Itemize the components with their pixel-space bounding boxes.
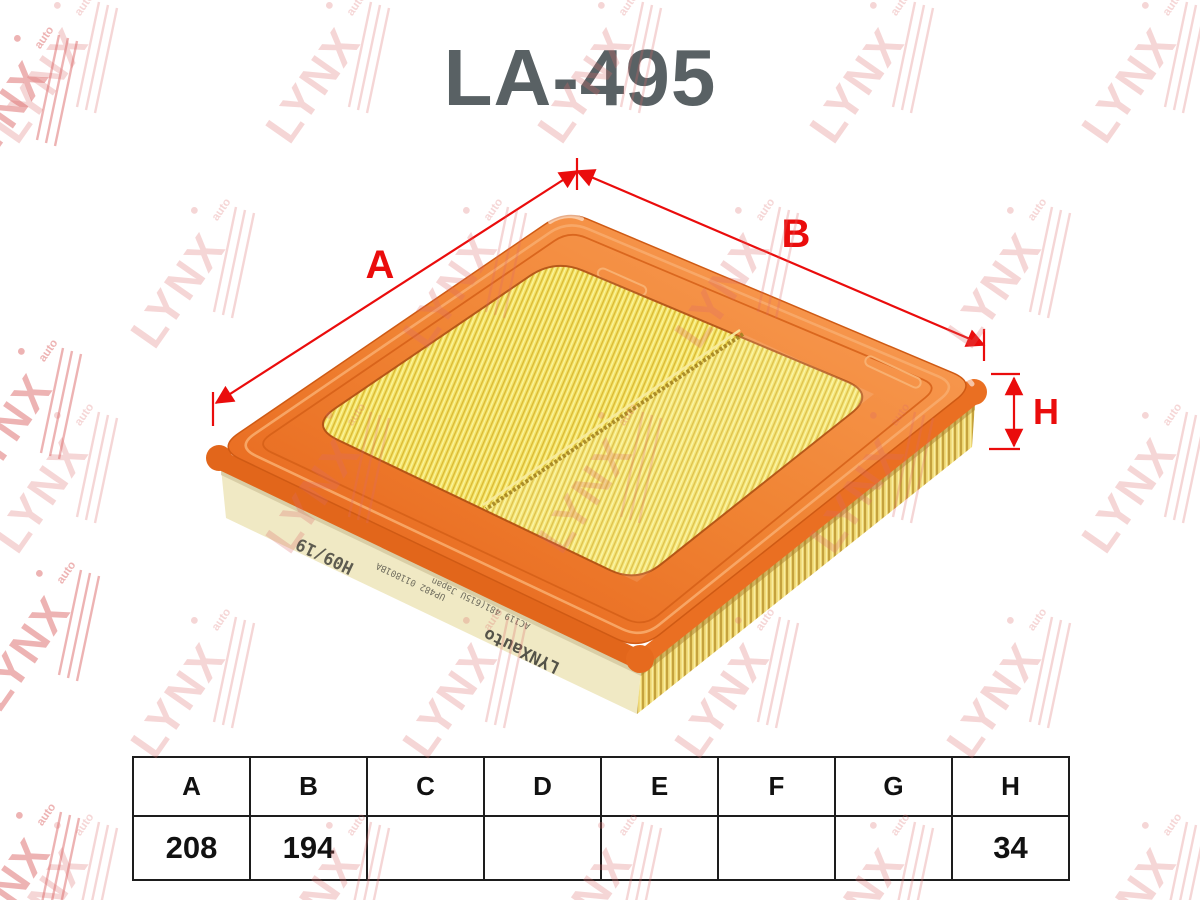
print-brand: LYNXauto xyxy=(481,624,564,677)
part-number-title: LA-495 xyxy=(0,38,1160,118)
glue-seam xyxy=(486,334,743,509)
print-date-code: H09/19 xyxy=(293,533,357,577)
frame-lip-left xyxy=(217,448,640,671)
dimensions-header-row: A B C D E F G H xyxy=(133,757,1069,816)
dimension-annotations xyxy=(213,158,1020,449)
frame-rib-right xyxy=(864,355,923,389)
frame-corner-bottom xyxy=(626,645,654,673)
pleated-media-top xyxy=(324,267,861,574)
dim-value-a: 208 xyxy=(133,816,250,880)
dim-label-h: H xyxy=(1033,391,1059,432)
frame-rim-highlight xyxy=(246,225,949,632)
dim-label-b: B xyxy=(782,212,811,256)
frame-corner-right xyxy=(961,379,987,405)
dim-value-f xyxy=(718,816,835,880)
frame-rim-crease xyxy=(263,235,932,623)
catalog-product-image: LA-495 A B C D E F G H 208 194 34 xyxy=(0,0,1200,900)
frame-lip-right xyxy=(640,383,977,671)
frame-top-face xyxy=(228,216,966,644)
dim-header-e: E xyxy=(601,757,718,816)
dim-header-c: C xyxy=(367,757,484,816)
dim-value-e xyxy=(601,816,718,880)
pleated-media-top-outline xyxy=(324,267,861,574)
filter-media-side-pleat-ends xyxy=(637,403,975,714)
dim-value-d xyxy=(484,816,601,880)
dim-header-g: G xyxy=(835,757,952,816)
glue-seam-highlight xyxy=(483,330,740,505)
dim-header-f: F xyxy=(718,757,835,816)
media-top-shadow-left xyxy=(221,468,641,676)
filter-side-print: H09/19 UP482 011801BA AC119 481(615U Jap… xyxy=(293,533,563,677)
dim-value-b: 194 xyxy=(250,816,367,880)
frame-corner-left xyxy=(206,445,232,471)
dimensions-table: A B C D E F G H 208 194 34 xyxy=(132,756,1070,881)
dim-label-a: A xyxy=(366,243,395,287)
dim-value-h: 34 xyxy=(952,816,1069,880)
frame-gloss-right-corner xyxy=(936,362,972,384)
dim-header-h: H xyxy=(952,757,1069,816)
filter-media-side-cream xyxy=(221,468,641,714)
dim-header-b: B xyxy=(250,757,367,816)
dim-header-a: A xyxy=(133,757,250,816)
print-code2: AC119 481(615U Japan xyxy=(430,575,532,631)
dimensions-value-row: 208 194 34 xyxy=(133,816,1069,880)
frame-rib-top xyxy=(596,267,648,297)
dim-value-c xyxy=(367,816,484,880)
media-top-shadow-right xyxy=(641,403,975,676)
dim-header-d: D xyxy=(484,757,601,816)
frame-gloss-top-corner xyxy=(550,216,582,222)
dimension-labels: A B H xyxy=(366,212,1059,432)
dim-value-g xyxy=(835,816,952,880)
dim-line-a xyxy=(216,171,577,403)
air-filter-photo: H09/19 UP482 011801BA AC119 481(615U Jap… xyxy=(206,216,987,714)
dim-line-b xyxy=(577,171,984,345)
pleat-highlight-zone xyxy=(486,334,874,582)
print-code1: UP482 011801BA xyxy=(374,560,447,602)
